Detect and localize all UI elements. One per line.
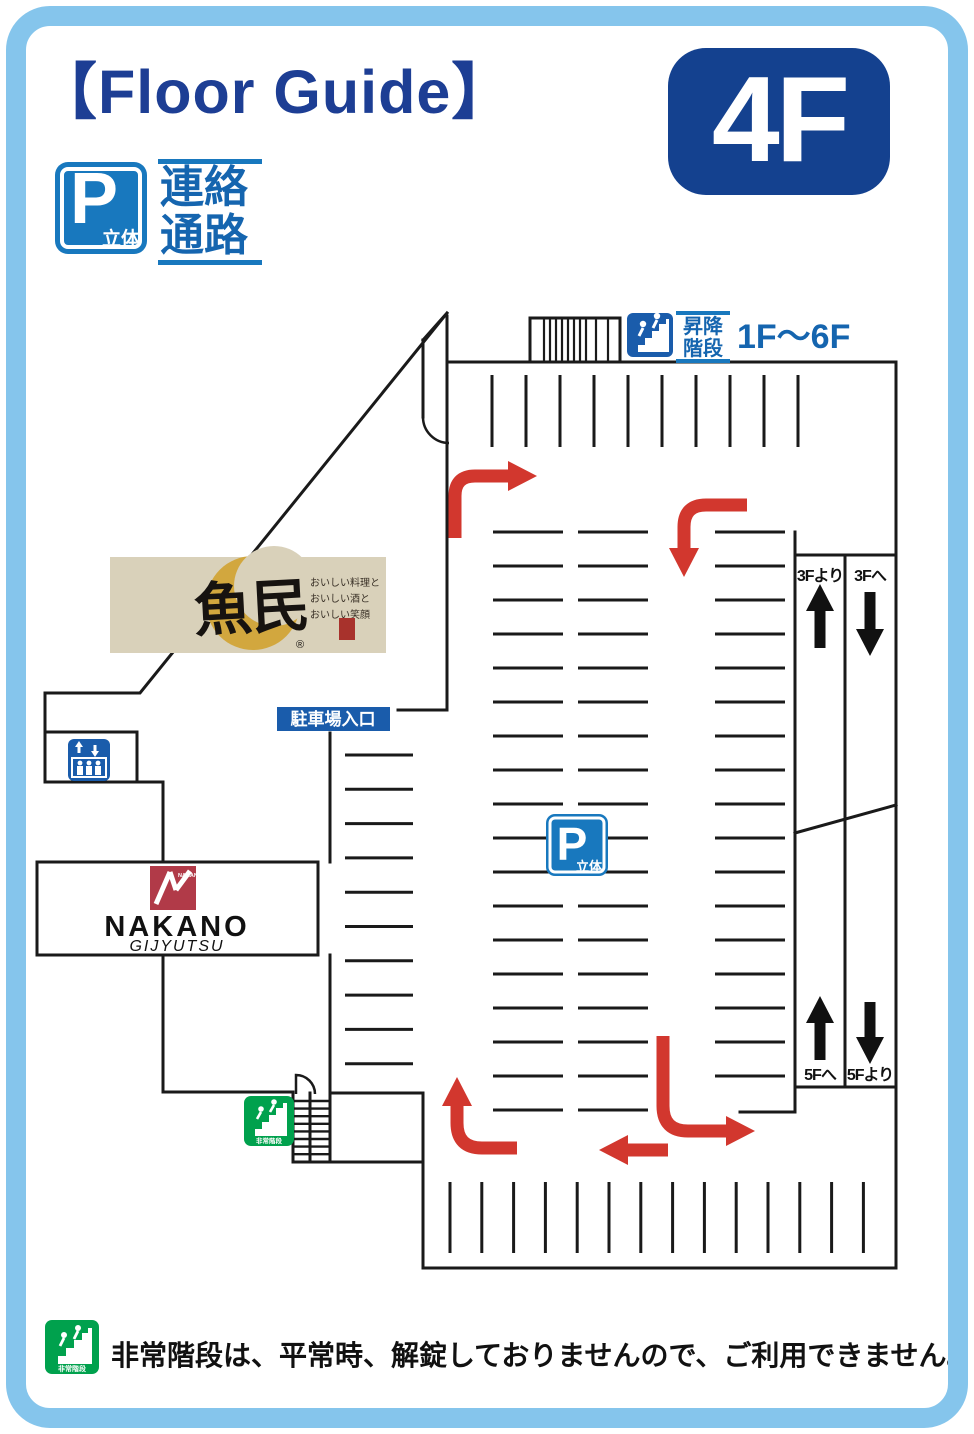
stairs-label-line2: 階段 — [683, 336, 723, 360]
emergency-stairs-icon: 非常階段 — [244, 1096, 294, 1146]
entrance-label: 駐車場入口 — [277, 707, 390, 731]
page-title: 【Floor Guide】 — [36, 42, 513, 131]
corridor-label: 連絡 通路 — [158, 159, 262, 265]
ramp-label-to5f: 5Fへ — [804, 1067, 837, 1084]
uotami-registered: ® — [296, 639, 304, 651]
uotami-tagline2: おいしい酒と — [310, 593, 370, 605]
stairs-label-bottombar — [676, 359, 730, 363]
stall-col-right — [715, 532, 785, 1076]
building-outline — [45, 313, 896, 1268]
tenant-uotami-logo: 魚民 おいしい料理と おいしい酒と おいしい笑顔 ® — [110, 546, 386, 653]
stairs-label-topbar — [676, 311, 730, 315]
stairs-range: 1F〜6F — [737, 318, 850, 356]
footer-note: 非常階段は、平常時、解錠しておりませんので、ご利用できません。 — [111, 1334, 974, 1374]
ramp-label-from3f: 3Fより — [797, 567, 843, 585]
parking-sign-icon: P 立体 — [55, 162, 147, 254]
upper-stairs-sign: 昇降 階段 1F〜6F — [627, 311, 850, 363]
corridor-label-line2: 通路 — [158, 212, 262, 260]
emergency-door-arc — [296, 1075, 315, 1094]
stall-row-top — [492, 375, 798, 447]
elevator-icon — [68, 739, 110, 781]
tenant-nakano-sign: NAKANO NAKANO GIJYUTSU — [37, 862, 318, 955]
nakano-sub: GIJYUTSU — [129, 938, 224, 955]
emergency-stairs-label: 非常階段 — [256, 1136, 283, 1145]
corridor-label-bottombar — [158, 260, 262, 265]
uotami-name: 魚民 — [192, 573, 311, 644]
uotami-seal — [339, 618, 355, 640]
arrow-up-right-turn — [455, 476, 508, 538]
parking-sign-sub: 立体 — [102, 224, 140, 251]
arrow-down-right-turn — [663, 1036, 726, 1131]
corridor-label-line1: 連絡 — [158, 164, 262, 212]
footer-emergency-icon-label: 非常階段 — [58, 1364, 86, 1373]
entrance-label-text: 駐車場入口 — [291, 709, 376, 729]
center-parking-badge: P 立体 — [546, 814, 608, 876]
ramp-label-to3f: 3Fへ — [854, 568, 887, 585]
center-parking-sub: 立体 — [576, 859, 603, 874]
nakano-logo-text: NAKANO — [178, 873, 203, 879]
stairs-label-line1: 昇降 — [683, 314, 724, 338]
ramp-label-from5f: 5Fより — [847, 1066, 893, 1084]
uotami-tagline1: おいしい料理と — [310, 576, 380, 589]
floor-badge: 4F — [668, 48, 890, 195]
traffic-arrows — [455, 476, 747, 1150]
arrow-left-down-turn — [684, 505, 747, 548]
floor-guide-poster: 【Floor Guide】 4F P 立体 連絡 通路 — [0, 0, 974, 1434]
stair-nook-door-arc — [423, 417, 449, 443]
stall-row-bottom — [450, 1182, 863, 1253]
stall-col-left — [345, 755, 413, 1064]
arrow-left-up-turn — [457, 1106, 517, 1148]
footer-emergency-icon: 非常階段 — [45, 1320, 99, 1374]
